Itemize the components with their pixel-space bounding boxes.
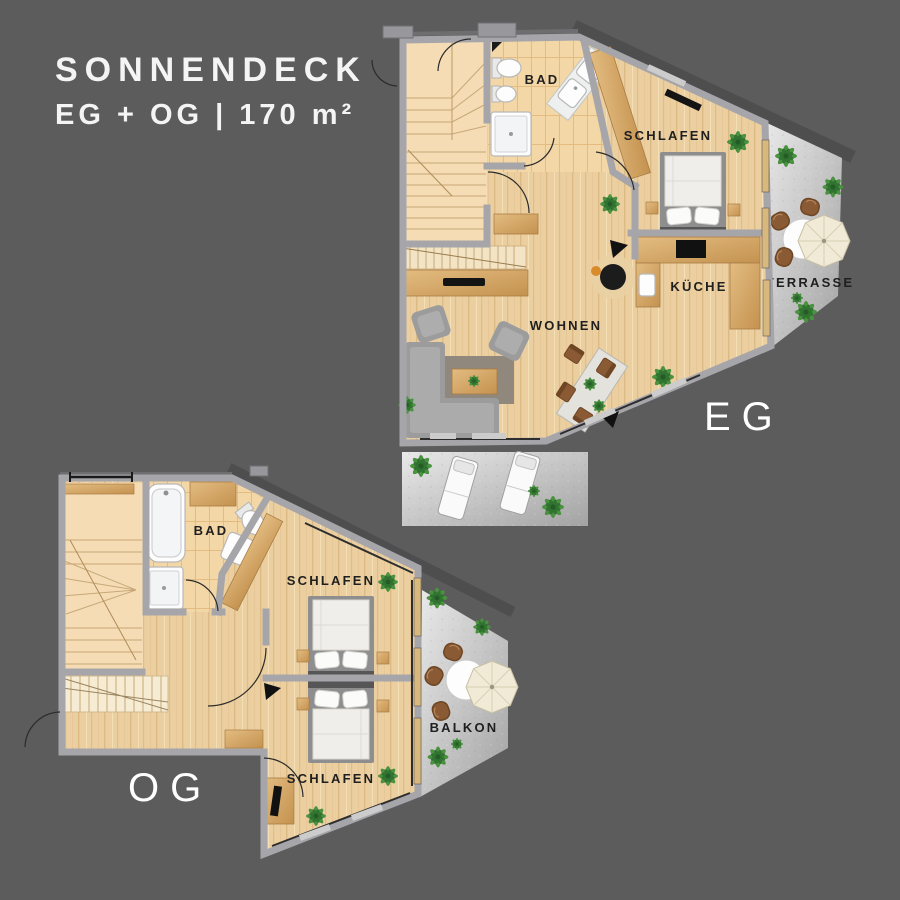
eg-room-label-schlafen: SCHLAFEN [624,128,712,143]
eg-sideboard [404,270,528,296]
og-lower-stair-hatch [62,676,168,712]
kitchen-sink-icon [639,274,655,296]
nightstand [728,204,740,216]
plant-icon [542,496,564,518]
wall-pier [478,23,516,37]
plant-icon [791,292,803,304]
plant-icon [410,455,432,477]
title-line2: EG + OG | 170 m² [55,99,355,131]
eg-room-label-terrasse: TERRASSE [766,275,854,290]
bath-shelf [190,482,236,506]
og-room-label-schlafen-top: SCHLAFEN [287,573,375,588]
plant-icon [378,572,398,592]
nightstand [377,652,389,664]
plant-icon [775,145,797,167]
nightstand [646,202,658,214]
wall-pier [250,466,268,476]
bathtub-icon [148,484,185,562]
firewood-basket [591,266,601,276]
og-floor-label: OG [128,766,212,810]
bed-icon [308,596,374,678]
hall-bench [494,214,538,234]
og-room-label-bad: BAD [194,523,229,538]
eg-floor-label: EG [704,395,784,439]
nightstand [377,700,389,712]
plant-icon [823,177,844,198]
plant-icon [473,618,491,636]
eg-lower-terrace [402,451,588,526]
title-line1: SONNENDECK [55,51,367,89]
nightstand [297,698,309,710]
plant-icon [468,375,480,387]
kitchen-counter [730,263,760,329]
plant-icon [583,377,596,390]
plant-icon [600,194,620,214]
stove-icon [600,264,626,290]
floorplan-page: TERRASSE [0,0,900,900]
eg-stair-area [403,40,487,244]
floorplan-canvas: TERRASSE [0,0,900,900]
stair-top-steps [225,730,263,748]
parasol-icon [466,661,518,713]
eg-room-label-wohnen: WOHNEN [530,318,602,333]
parasol-icon [798,215,850,267]
bidet-icon [496,86,516,102]
toilet-icon [497,59,521,77]
eg-room-label-kueche: KÜCHE [670,279,727,294]
nightstand [297,650,309,662]
wall-pier [383,26,413,38]
plant-icon [428,747,449,768]
plant-icon [306,806,326,826]
bed-icon [660,152,726,234]
bed-icon [308,681,374,763]
cooktop-icon [676,240,706,258]
og-stair-area [62,483,143,672]
eg-room-label-bad: BAD [525,72,560,87]
plant-icon [592,399,605,412]
tv-icon [443,278,485,286]
plant-icon [528,485,540,497]
plant-icon [727,131,749,153]
og-room-label-balkon: BALKON [430,720,499,735]
plant-icon [427,588,448,609]
plant-icon [451,738,463,750]
shower-icon [146,567,183,609]
plant-icon [378,766,398,786]
shower-icon [491,112,531,156]
plant-icon [795,301,817,323]
eg-stair-hatch [402,246,526,269]
